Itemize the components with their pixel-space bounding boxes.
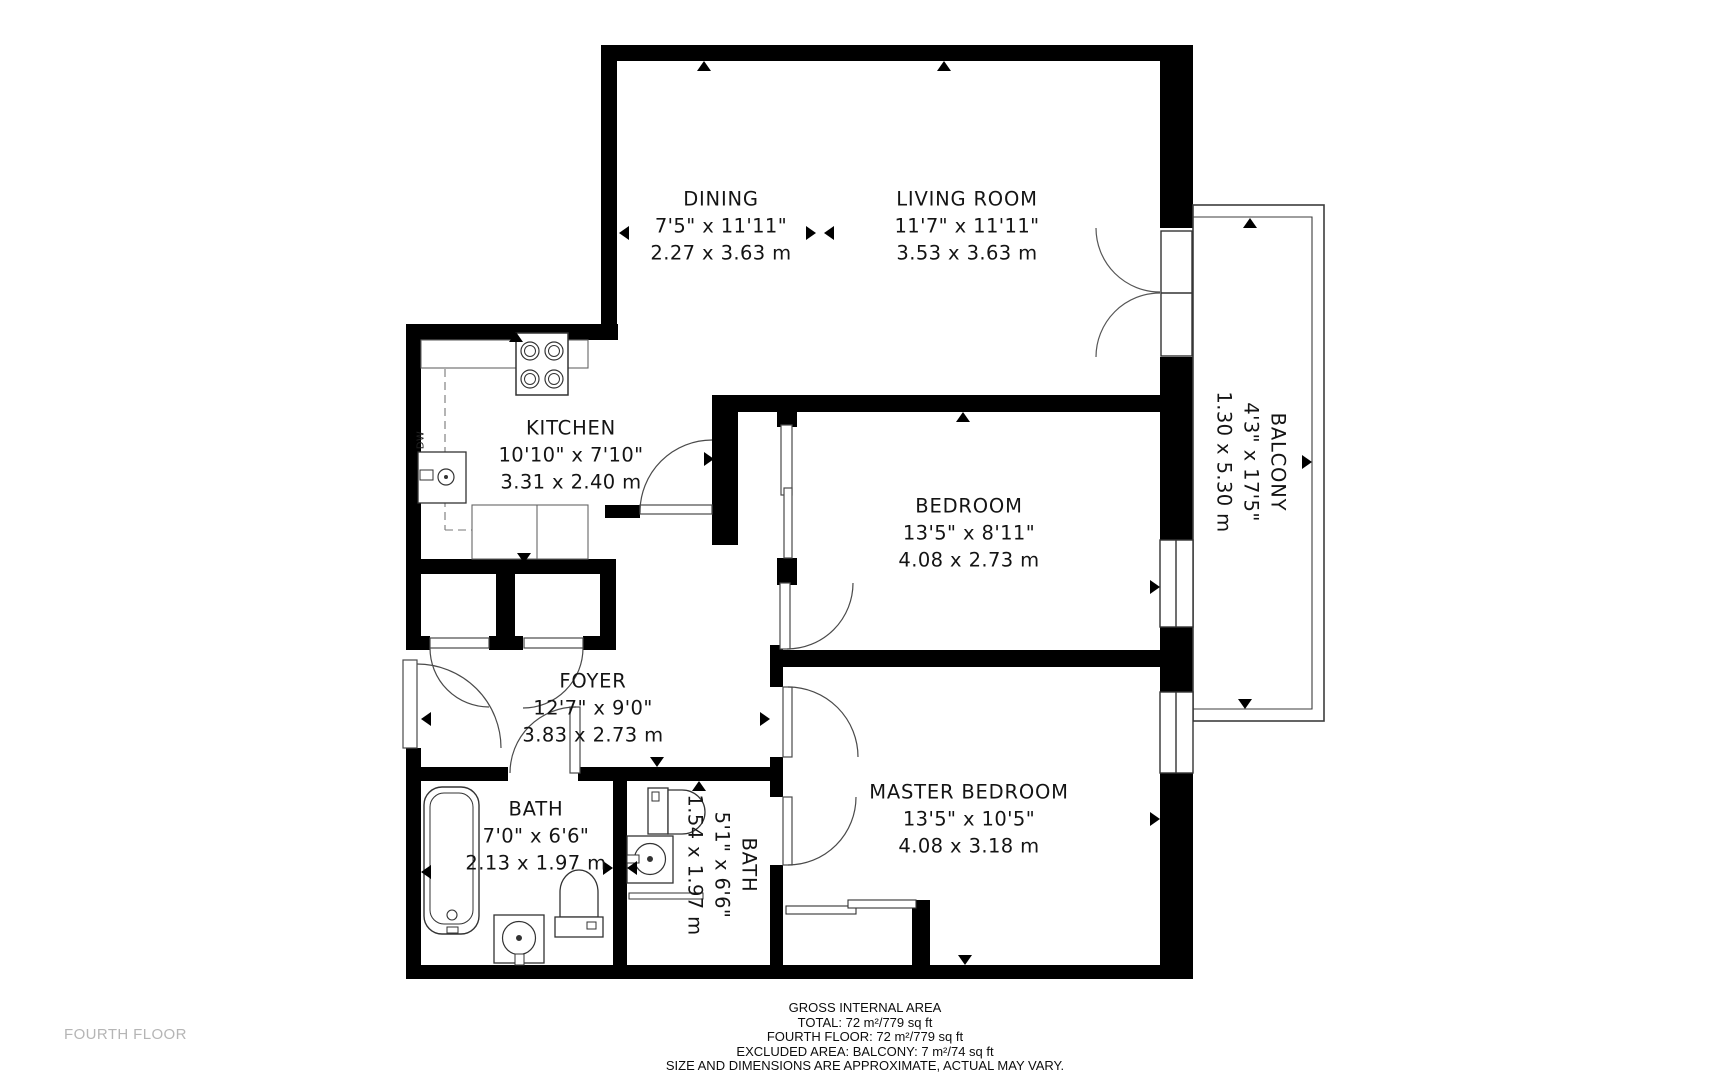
room-dim-imperial: 7'5" x 11'11" <box>650 213 791 240</box>
french-door-arcs <box>1096 228 1160 357</box>
french-door-arc-lower <box>1096 293 1160 357</box>
wall-kitchen-top <box>406 324 618 340</box>
room-dim-metric: 3.83 x 2.73 m <box>522 722 663 749</box>
room-label-bedroom: BEDROOM 13'5" x 8'11" 4.08 x 2.73 m <box>898 493 1039 574</box>
closet2-door-leaf <box>524 638 583 648</box>
entry-door-leaf <box>403 660 417 748</box>
wall-hall-stub <box>605 505 640 518</box>
area-summary: GROSS INTERNAL AREA TOTAL: 72 m²/779 sq … <box>666 1001 1064 1074</box>
kitchen-door-leaf <box>640 505 712 514</box>
room-dim-imperial: 13'5" x 10'5" <box>869 806 1069 833</box>
wall-bath-top-b <box>578 767 770 781</box>
room-label-kitchen: KITCHEN 10'10" x 7'10" 3.31 x 2.40 m <box>498 415 643 496</box>
wall-closet-top <box>406 559 616 574</box>
room-name: FOYER <box>522 668 663 695</box>
room-name: BEDROOM <box>898 493 1039 520</box>
wall-dining-left <box>601 45 617 340</box>
room-dim-imperial: 4'3" x 17'5" <box>1238 391 1265 532</box>
toilet <box>555 870 603 937</box>
wall-master-left-a <box>770 667 783 687</box>
room-label-master-bedroom: MASTER BEDROOM 13'5" x 10'5" 4.08 x 3.18… <box>869 779 1069 860</box>
bedroom-door-leaf <box>780 583 790 649</box>
master-door-leaf <box>783 687 792 757</box>
bedroom-pocket-door-panel-b <box>784 488 792 558</box>
floorplan: DINING 7'5" x 11'11" 2.27 x 3.63 m LIVIN… <box>0 0 1729 1080</box>
wall-right-b <box>1160 357 1193 540</box>
room-dim-imperial: 10'10" x 7'10" <box>498 442 643 469</box>
closet1-door-leaf <box>430 638 489 648</box>
entry-door-arc <box>417 664 501 748</box>
room-dim-metric: 2.13 x 1.97 m <box>465 850 606 877</box>
closet1-door-arc <box>430 648 489 707</box>
room-label-living-room: LIVING ROOM 11'7" x 11'11" 3.53 x 3.63 m <box>894 186 1039 267</box>
wall-right-d <box>1160 773 1193 979</box>
room-label-ensuite-bath: BATH 5'1" x 6'6" 1.54 x 1.97 m <box>682 794 763 935</box>
room-dim-imperial: 5'1" x 6'6" <box>709 794 736 935</box>
area-summary-title: GROSS INTERNAL AREA <box>666 1001 1064 1016</box>
area-summary-total: TOTAL: 72 m²/779 sq ft <box>666 1016 1064 1031</box>
area-summary-floor: FOURTH FLOOR: 72 m²/779 sq ft <box>666 1030 1064 1045</box>
wall-right-a <box>1160 45 1193 228</box>
room-name: LIVING ROOM <box>894 186 1039 213</box>
ensuite-door-leaf <box>783 797 792 865</box>
wall-bath-divider <box>613 781 627 965</box>
french-door-arc-upper <box>1096 228 1160 292</box>
kitchen-peninsula <box>472 505 588 559</box>
sink <box>627 836 673 883</box>
stove <box>516 333 568 395</box>
room-label-dining: DINING 7'5" x 11'11" 2.27 x 3.63 m <box>650 186 791 267</box>
floor-name-label: FOURTH FLOOR <box>64 1026 187 1043</box>
room-dim-metric: 1.54 x 1.97 m <box>682 794 709 935</box>
bedroom-pocket-door-panel-a <box>781 425 792 495</box>
master-closet <box>786 900 916 914</box>
wall-hall-column <box>712 395 738 545</box>
wall-closet-stub-c <box>583 636 616 650</box>
ensuite-door-arc <box>788 797 856 865</box>
room-dim-metric: 4.08 x 2.73 m <box>898 547 1039 574</box>
wall-bottom <box>406 965 1193 979</box>
area-summary-excluded: EXCLUDED AREA: BALCONY: 7 m²/74 sq ft <box>666 1045 1064 1060</box>
room-name: BALCONY <box>1265 391 1292 532</box>
wall-bath-top-a <box>406 767 508 781</box>
room-dim-imperial: 7'0" x 6'6" <box>465 823 606 850</box>
room-dim-imperial: 11'7" x 11'11" <box>894 213 1039 240</box>
room-name: DINING <box>650 186 791 213</box>
wall-bedroom-door-stub-top <box>777 407 797 427</box>
room-name: BATH <box>465 796 606 823</box>
room-dim-metric: 1.30 x 5.30 m <box>1211 391 1238 532</box>
sliding-closet-door-panel <box>848 900 916 908</box>
wall-master-left-b <box>770 757 783 797</box>
room-dim-metric: 3.31 x 2.40 m <box>498 469 643 496</box>
room-dim-metric: 4.08 x 3.18 m <box>869 833 1069 860</box>
room-dim-metric: 2.27 x 3.63 m <box>650 240 791 267</box>
sink <box>494 915 544 965</box>
master-door-arc <box>788 687 858 757</box>
room-label-balcony: BALCONY 4'3" x 17'5" 1.30 x 5.30 m <box>1211 391 1292 532</box>
wall-left-lower <box>406 748 421 979</box>
wall-top <box>601 45 1193 61</box>
wall-bedroom-door-stub-bottom <box>777 558 797 585</box>
bedroom-door-arc <box>787 583 853 649</box>
room-dim-metric: 3.53 x 3.63 m <box>894 240 1039 267</box>
room-name: MASTER BEDROOM <box>869 779 1069 806</box>
room-name: BATH <box>736 794 763 935</box>
room-name: KITCHEN <box>498 415 643 442</box>
floorplan-drawing <box>0 0 1729 1080</box>
area-summary-disclaimer: SIZE AND DIMENSIONS ARE APPROXIMATE, ACT… <box>666 1059 1064 1074</box>
dishwasher-label: DW <box>416 431 427 450</box>
wall-master-closet-stub <box>912 900 930 965</box>
wall-master-left-c <box>770 865 783 965</box>
sliding-closet-door-panel <box>786 906 856 914</box>
wall-closet-stub-b <box>489 636 523 650</box>
room-dim-imperial: 13'5" x 8'11" <box>898 520 1039 547</box>
wall-right-c <box>1160 627 1193 692</box>
wall-closet-stub-a <box>406 636 430 650</box>
room-label-bath: BATH 7'0" x 6'6" 2.13 x 1.97 m <box>465 796 606 877</box>
room-label-foyer: FOYER 12'7" x 9'0" 3.83 x 2.73 m <box>522 668 663 749</box>
kitchen-door-arc <box>640 440 712 512</box>
wall-bedroom-master-divider <box>770 650 1160 667</box>
kitchen-sink <box>418 452 466 503</box>
room-dim-imperial: 12'7" x 9'0" <box>522 695 663 722</box>
